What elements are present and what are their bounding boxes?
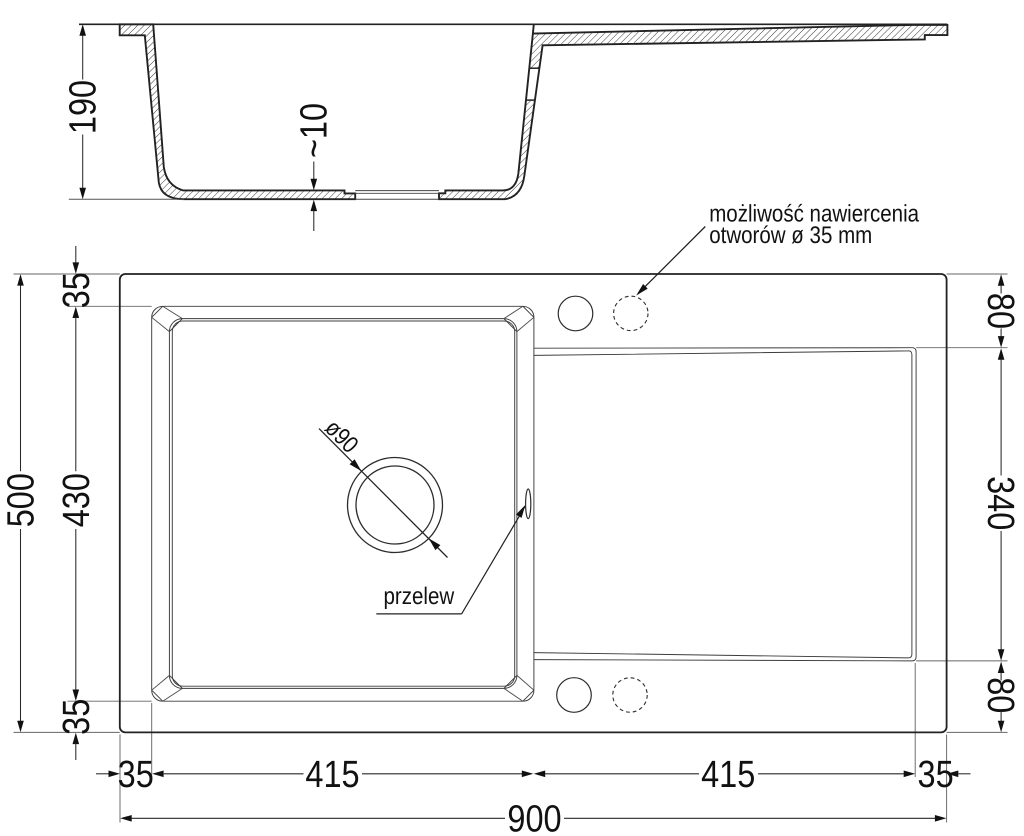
svg-text:415: 415 bbox=[701, 754, 755, 796]
svg-text:500: 500 bbox=[0, 473, 42, 527]
svg-text:190: 190 bbox=[63, 80, 105, 134]
svg-text:35: 35 bbox=[918, 754, 954, 796]
svg-text:340: 340 bbox=[979, 476, 1021, 530]
svg-text:80: 80 bbox=[979, 293, 1021, 329]
svg-text:900: 900 bbox=[507, 799, 561, 836]
svg-text:35: 35 bbox=[118, 754, 154, 796]
svg-text:80: 80 bbox=[979, 677, 1021, 713]
svg-text:415: 415 bbox=[305, 754, 359, 796]
svg-text:~10: ~10 bbox=[294, 103, 336, 158]
svg-text:35: 35 bbox=[56, 699, 98, 735]
svg-text:przelew: przelew bbox=[384, 583, 455, 610]
svg-text:otworów ø 35 mm: otworów ø 35 mm bbox=[709, 222, 872, 249]
svg-text:430: 430 bbox=[56, 473, 98, 527]
svg-text:35: 35 bbox=[56, 272, 98, 308]
